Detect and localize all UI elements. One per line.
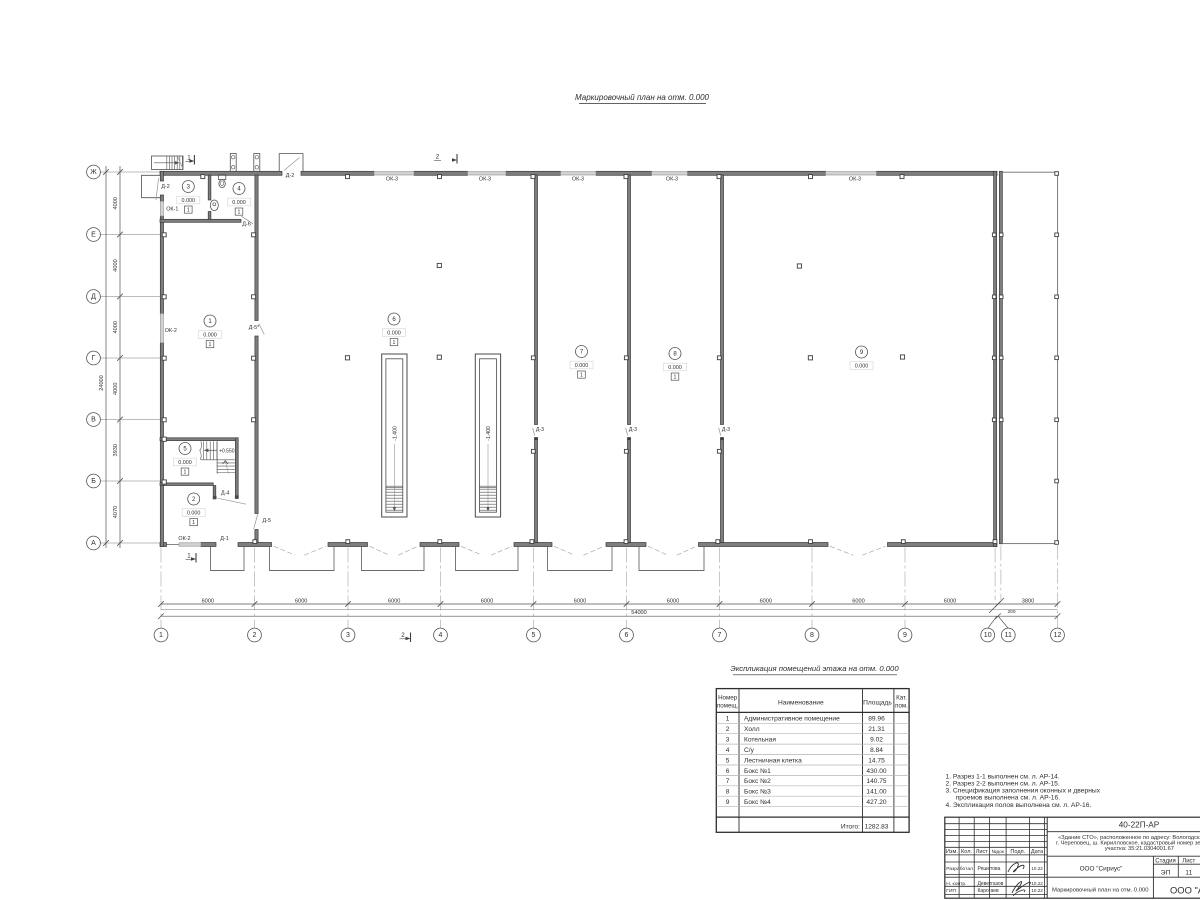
svg-text:ООО "Альянс": ООО "Альянс" [1170,884,1200,895]
svg-text:0.000: 0.000 [387,331,401,337]
svg-text:ОК-3: ОК-3 [479,177,491,183]
svg-text:ОК-1: ОК-1 [166,207,178,213]
svg-text:0.000: 0.000 [182,198,196,204]
svg-text:Деветгазов: Деветгазов [978,881,1004,887]
svg-text:Д-2: Д-2 [286,173,294,179]
svg-text:8: 8 [810,632,814,639]
svg-text:Е: Е [91,232,96,239]
svg-text:Д-5: Д-5 [263,518,271,524]
svg-text:Д-3: Д-3 [536,427,544,433]
svg-text:Изм.: Изм. [946,849,958,855]
svg-text:0.000: 0.000 [855,364,869,370]
svg-text:10.22: 10.22 [1031,881,1043,886]
svg-text:12: 12 [1054,632,1062,639]
svg-text:4070: 4070 [113,506,119,518]
svg-text:6: 6 [726,768,730,775]
svg-text:14.75: 14.75 [868,757,885,764]
svg-text:№док: №док [991,849,1004,854]
svg-text:1: 1 [187,553,191,560]
svg-text:10: 10 [984,632,992,639]
svg-text:2: 2 [253,632,257,639]
svg-text:1: 1 [726,716,730,723]
svg-text:Бокс №3: Бокс №3 [744,789,771,796]
svg-text:Подп.: Подп. [1010,849,1025,855]
svg-text:0.000: 0.000 [203,333,217,339]
svg-text:1: 1 [580,373,583,379]
svg-text:2: 2 [436,154,440,161]
svg-text:участка: 35:21.0304001.67: участка: 35:21.0304001.67 [1105,846,1174,852]
svg-text:ОК-3: ОК-3 [572,177,584,183]
svg-text:Лист: Лист [976,849,989,855]
svg-text:Бокс №2: Бокс №2 [744,778,771,785]
svg-text:ОК-3: ОК-3 [666,177,678,183]
svg-text:3: 3 [346,632,350,639]
svg-text:помещ.: помещ. [717,703,739,710]
svg-text:ОК-2: ОК-2 [178,536,190,542]
svg-text:ОК-2: ОК-2 [165,328,177,334]
svg-text:1: 1 [209,342,212,348]
svg-text:4000: 4000 [113,197,119,209]
svg-text:Лист: Лист [1182,858,1195,864]
svg-text:Маркировочный план на отм. 0.0: Маркировочный план на отм. 0.000 [1052,886,1149,893]
svg-text:141.00: 141.00 [866,789,887,796]
svg-text:Экспликация помещений этажа на: Экспликация помещений этажа на отм. 0.00… [730,664,899,673]
svg-text:Ж: Ж [90,169,97,176]
svg-text:54000: 54000 [631,610,647,616]
svg-text:Итого:: Итого: [841,823,860,830]
svg-text:200: 200 [1007,609,1015,615]
svg-text:1: 1 [184,470,187,476]
svg-text:Холл: Холл [744,726,760,733]
svg-text:3: 3 [726,737,730,744]
svg-text:6000: 6000 [202,599,214,605]
svg-text:1: 1 [159,632,163,639]
svg-text:6000: 6000 [574,599,586,605]
svg-text:24000: 24000 [99,375,105,391]
svg-text:Номер: Номер [718,694,738,701]
svg-text:4. Экспликация полов выполнена: 4. Экспликация полов выполнена см. л. АР… [946,802,1092,809]
svg-text:-1.400: -1.400 [486,426,492,441]
svg-text:21.31: 21.31 [868,726,885,733]
svg-text:3800: 3800 [1022,599,1034,605]
svg-text:0.000: 0.000 [668,365,682,371]
svg-text:3. Спецификация заполнения око: 3. Спецификация заполнения оконных и две… [946,788,1101,795]
svg-text:6000: 6000 [667,599,679,605]
svg-text:В: В [91,417,96,424]
svg-text:1: 1 [238,210,241,216]
svg-text:11: 11 [1005,632,1012,639]
svg-text:9: 9 [903,632,907,639]
svg-text:7: 7 [718,632,722,639]
svg-text:40-22П-АР: 40-22П-АР [1119,821,1160,830]
svg-text:427.20: 427.20 [866,799,887,806]
svg-text:Котельная: Котельная [744,737,776,744]
svg-text:Наименование: Наименование [778,700,824,707]
svg-text:Д: Д [91,294,96,301]
svg-text:4: 4 [439,632,443,639]
svg-text:0.000: 0.000 [178,460,192,466]
svg-text:Карогаев: Карогаев [978,888,1000,894]
svg-text:проемов выполнена см. л. АР-16: проемов выполнена см. л. АР-16. [956,795,1061,802]
svg-text:1282.83: 1282.83 [865,823,889,830]
svg-text:6000: 6000 [481,599,493,605]
svg-text:Д-1: Д-1 [220,536,228,542]
svg-text:9.02: 9.02 [870,737,883,744]
svg-text:Бокс №1: Бокс №1 [744,768,771,775]
svg-text:6000: 6000 [760,599,772,605]
svg-text:А: А [91,540,96,547]
svg-text:Маркировочный план на отм. 0.0: Маркировочный план на отм. 0.000 [575,93,710,102]
svg-text:Д-4: Д-4 [221,491,229,497]
svg-text:1: 1 [674,375,677,381]
svg-text:Разработал: Разработал [946,866,973,872]
svg-text:пом.: пом. [895,703,908,710]
svg-text:6000: 6000 [295,599,307,605]
svg-text:-1.400: -1.400 [392,426,398,441]
svg-text:4000: 4000 [113,383,119,395]
svg-text:1: 1 [187,208,190,214]
svg-text:8: 8 [726,789,730,796]
svg-text:5: 5 [726,757,730,764]
svg-text:4: 4 [726,747,730,754]
svg-text:4000: 4000 [113,321,119,333]
svg-text:Административное помещение: Административное помещение [744,716,840,723]
svg-text:Б: Б [91,478,96,485]
svg-text:6000: 6000 [388,599,400,605]
svg-text:Бокс №4: Бокс №4 [744,799,771,806]
svg-text:2. Разрез 2-2 выполнен см. л.: 2. Разрез 2-2 выполнен см. л. АР-15. [946,780,1060,787]
svg-text:Д-3: Д-3 [629,427,637,433]
svg-text:89.96: 89.96 [868,716,885,723]
svg-text:Лестничная клетка: Лестничная клетка [744,757,802,764]
svg-text:6: 6 [625,632,629,639]
svg-text:11: 11 [1185,869,1192,876]
svg-text:3930: 3930 [113,444,119,456]
svg-text:10.22: 10.22 [1031,866,1043,871]
svg-text:Г: Г [92,355,96,362]
svg-text:Кол.: Кол. [961,849,973,855]
svg-text:ГИП: ГИП [946,888,956,894]
svg-text:0.000: 0.000 [187,511,201,517]
svg-text:5: 5 [532,632,536,639]
svg-text:430.00: 430.00 [866,768,887,775]
svg-text:2: 2 [726,726,730,733]
svg-text:2: 2 [401,632,405,639]
svg-text:7: 7 [726,778,730,785]
svg-text:+0.550: +0.550 [219,449,235,455]
svg-text:Стадия: Стадия [1155,858,1175,864]
svg-text:ОК-3: ОК-3 [386,177,398,183]
svg-text:С/у: С/у [744,747,755,754]
svg-text:Кат.: Кат. [896,694,907,701]
svg-text:Д-5*: Д-5* [249,325,260,331]
svg-text:9: 9 [726,799,730,806]
svg-text:Дата: Дата [1031,849,1044,855]
svg-text:4000: 4000 [113,259,119,271]
svg-text:1: 1 [192,520,195,526]
svg-text:0.000: 0.000 [232,200,246,206]
svg-text:Н. контр.: Н. контр. [946,881,966,887]
svg-text:Д-3: Д-3 [722,427,730,433]
svg-text:1: 1 [393,340,396,346]
svg-text:0.000: 0.000 [575,363,589,369]
svg-text:6000: 6000 [852,599,864,605]
svg-text:140.75: 140.75 [866,778,887,785]
svg-text:ООО "Сириус": ООО "Сириус" [1080,865,1123,872]
svg-text:10.22: 10.22 [1031,888,1043,893]
svg-text:Решетова: Решетова [978,866,1001,872]
svg-text:ОК-3: ОК-3 [849,177,861,183]
svg-text:1. Разрез 1-1 выполнен см. л.: 1. Разрез 1-1 выполнен см. л. АР-14. [946,773,1060,780]
svg-text:6000: 6000 [944,599,956,605]
svg-text:ЭП: ЭП [1161,869,1171,876]
svg-text:Д-2: Д-2 [161,184,169,190]
svg-text:Площадь: Площадь [863,700,892,707]
svg-text:Д-6: Д-6 [242,222,250,228]
svg-text:8.84: 8.84 [870,747,883,754]
